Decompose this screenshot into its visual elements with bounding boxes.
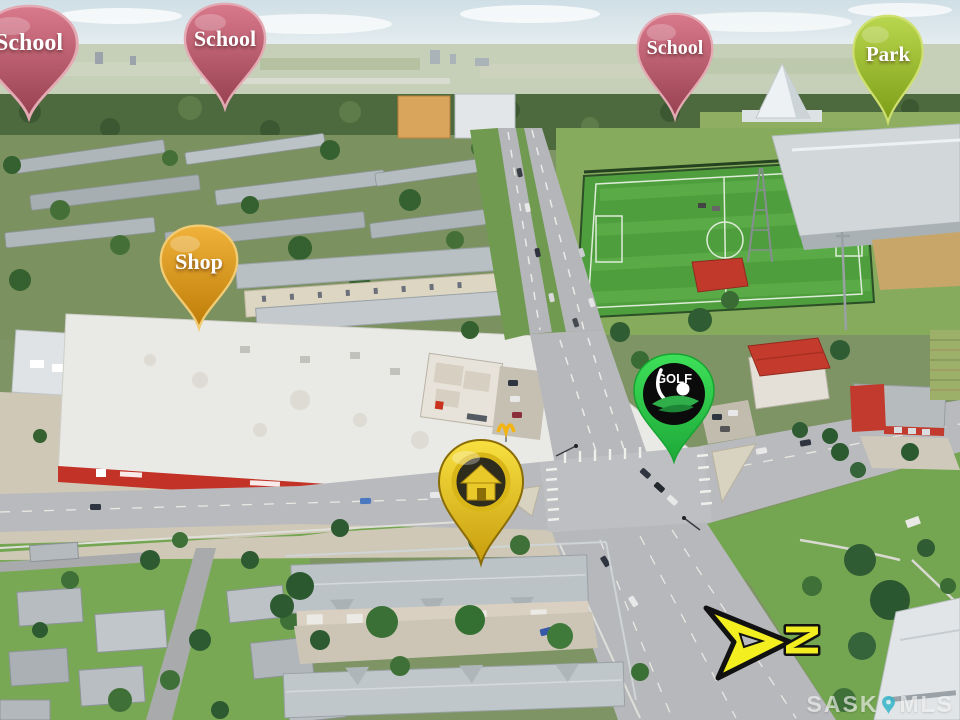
car xyxy=(360,498,371,504)
distant-horizon xyxy=(0,44,960,100)
pin-school-west: School xyxy=(0,2,82,122)
map-pin-icon xyxy=(0,2,82,122)
map-pin-icon xyxy=(181,0,269,112)
map-pin-icon xyxy=(157,222,241,332)
map-pin-icon xyxy=(850,12,926,126)
watermark-text-right: MLS xyxy=(899,691,954,718)
north-arrow-icon: N xyxy=(694,596,874,691)
map-pin-icon: GOLF xyxy=(630,350,718,464)
red-pavilion xyxy=(692,258,748,292)
pin-park: Park xyxy=(850,12,926,126)
pin-school-east: School xyxy=(634,10,716,122)
compass-north-indicator: N xyxy=(694,596,874,691)
car xyxy=(90,504,101,510)
pin-shop: Shop xyxy=(157,222,241,332)
pin-home-subject-property xyxy=(434,436,528,568)
aerial-map: School School School Park Shop GOLF xyxy=(0,0,960,720)
map-pin-icon xyxy=(434,436,528,568)
map-pin-icon xyxy=(881,695,896,715)
north-letter: N xyxy=(776,623,828,656)
pin-golf: GOLF xyxy=(630,350,718,464)
sky-band xyxy=(0,0,960,50)
pin-school-north: School xyxy=(181,0,269,112)
map-pin-icon xyxy=(634,10,716,122)
community-garden xyxy=(930,330,960,400)
watermark-text-left: SASK xyxy=(807,691,879,718)
watermark-sask-mls: SASK MLS xyxy=(807,691,954,718)
